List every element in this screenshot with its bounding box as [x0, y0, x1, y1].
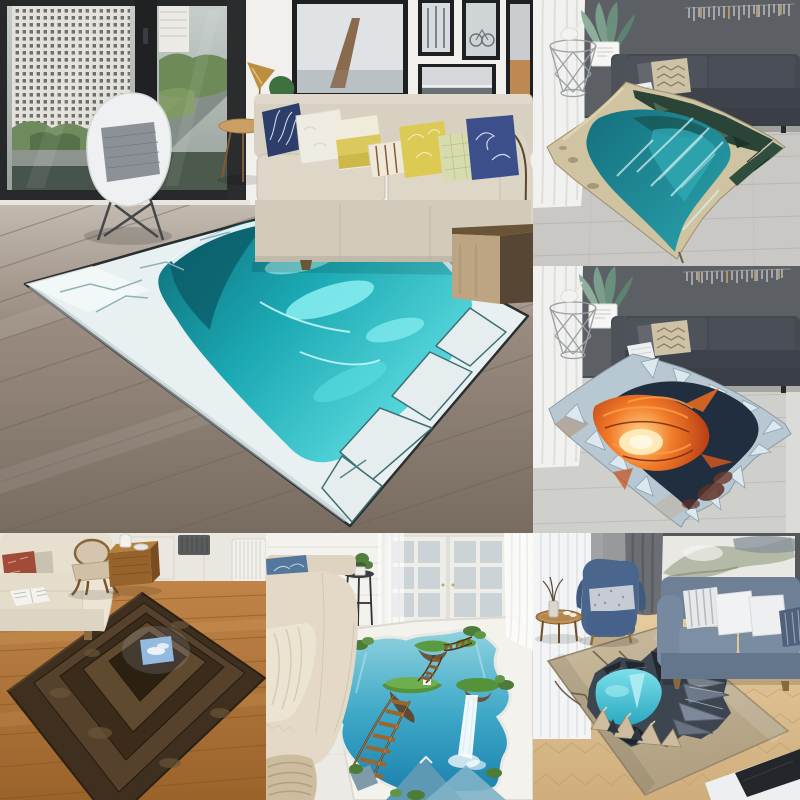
photo-tunnel-rug-room: [0, 533, 266, 800]
pillow-chevron: [651, 320, 691, 356]
photo-ice-cave-rug-room: [0, 0, 533, 533]
dark-radiator: [178, 535, 210, 555]
white-bowl: [134, 544, 148, 550]
sheer-curtain: [378, 533, 404, 633]
vase: [549, 601, 558, 617]
photo-lava-crater-rug-room: [533, 266, 800, 533]
armchair-cushion: [101, 122, 160, 182]
photo-island-bridge-rug-room: [266, 533, 533, 800]
photo-cracked-pool-rug-room: [533, 533, 800, 800]
framed-photo-sunset: [506, 0, 533, 104]
framed-photo-bicycle: [462, 0, 500, 60]
knit-pouf: [266, 755, 317, 800]
framed-photo-posts: [418, 0, 454, 56]
photo-lagoon-pit-rug-room: [533, 0, 800, 266]
window-handle: [143, 28, 148, 44]
wood-cabinet: [452, 224, 533, 304]
product-photo-collage: [0, 0, 800, 800]
sofa: [657, 577, 800, 691]
framed-photo-pier: [292, 0, 408, 98]
floral-cushion: [589, 585, 635, 613]
